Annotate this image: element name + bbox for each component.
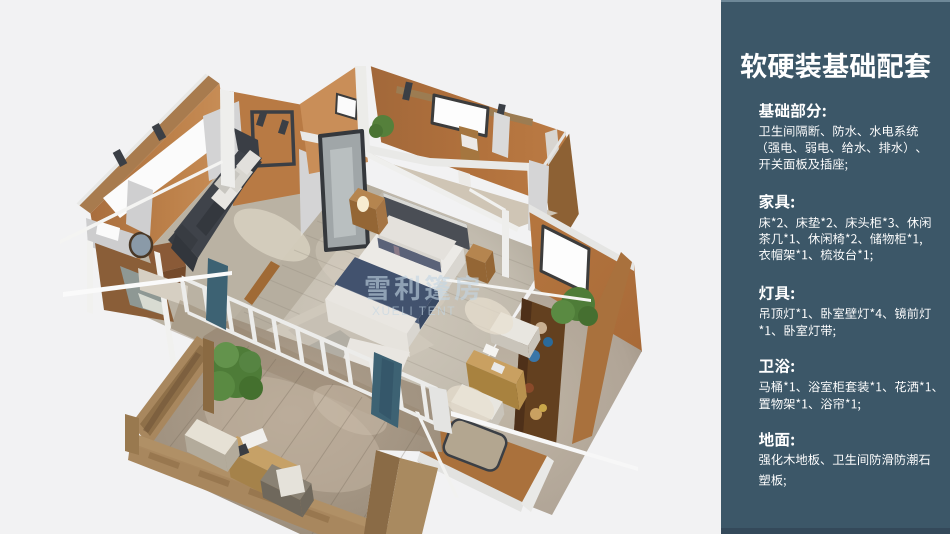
svg-text:XUELI TENT: XUELI TENT [372, 304, 456, 318]
